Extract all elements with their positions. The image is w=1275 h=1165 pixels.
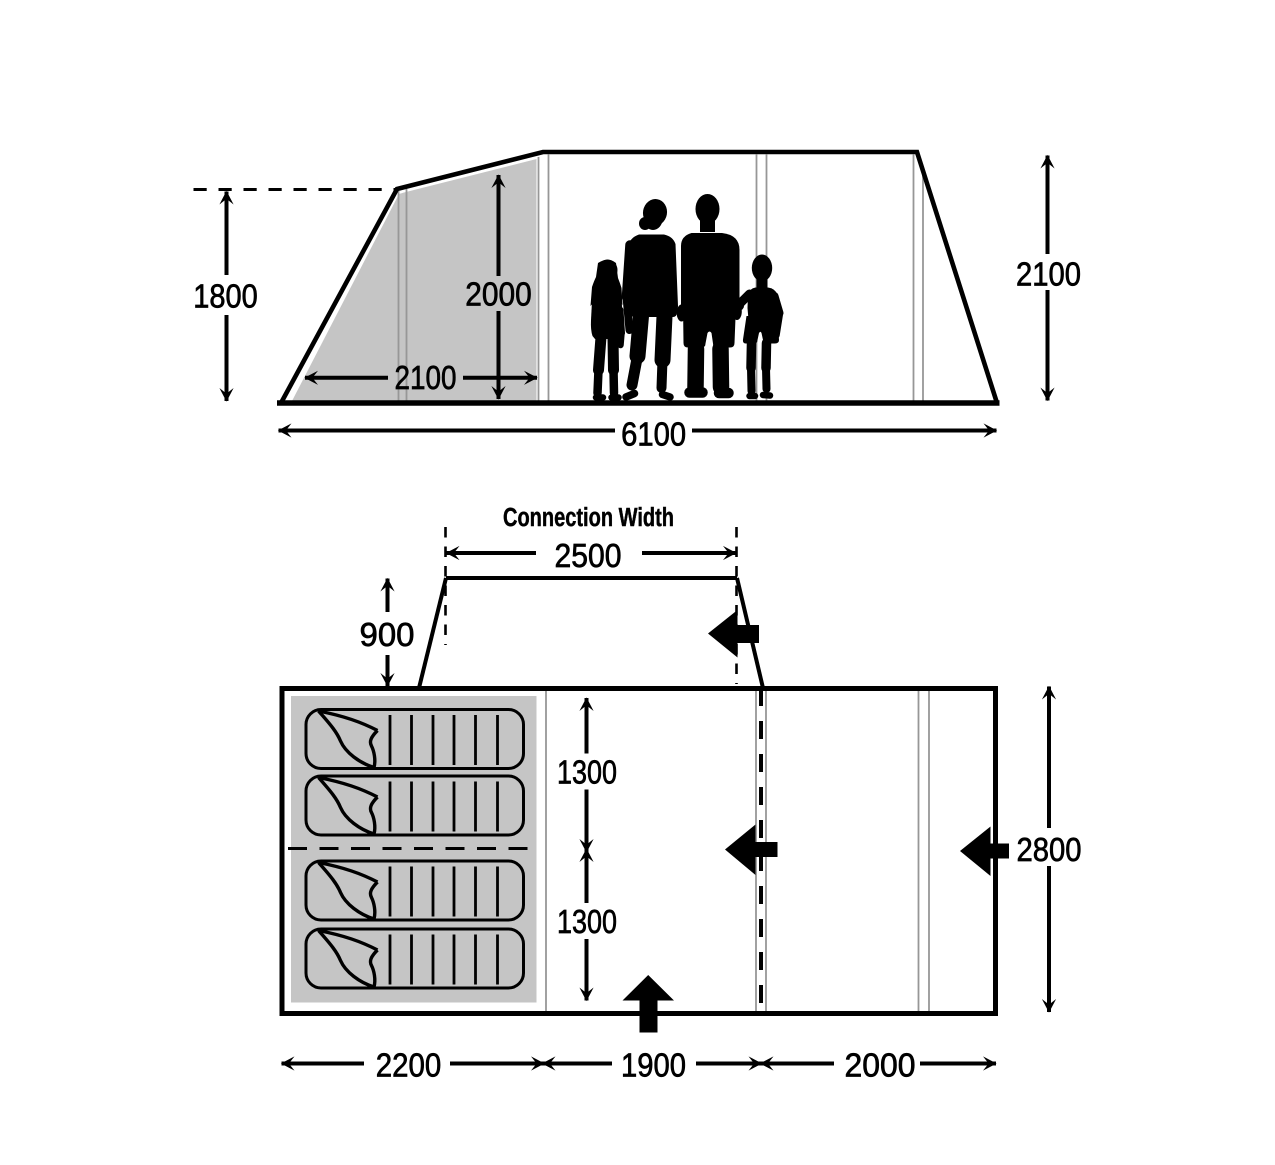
svg-text:1300: 1300 [557, 754, 617, 791]
svg-text:Connection Width: Connection Width [503, 504, 674, 532]
svg-text:1900: 1900 [621, 1047, 686, 1084]
svg-text:2000: 2000 [845, 1047, 916, 1084]
svg-text:2100: 2100 [395, 359, 457, 396]
svg-text:2200: 2200 [376, 1047, 442, 1084]
svg-text:2800: 2800 [1017, 831, 1082, 868]
svg-text:2500: 2500 [555, 537, 622, 574]
svg-text:2100: 2100 [1016, 256, 1081, 293]
svg-text:6100: 6100 [621, 416, 686, 453]
svg-text:1800: 1800 [193, 277, 258, 314]
svg-text:900: 900 [360, 616, 415, 653]
svg-text:2000: 2000 [465, 276, 532, 313]
svg-text:1300: 1300 [557, 903, 617, 940]
